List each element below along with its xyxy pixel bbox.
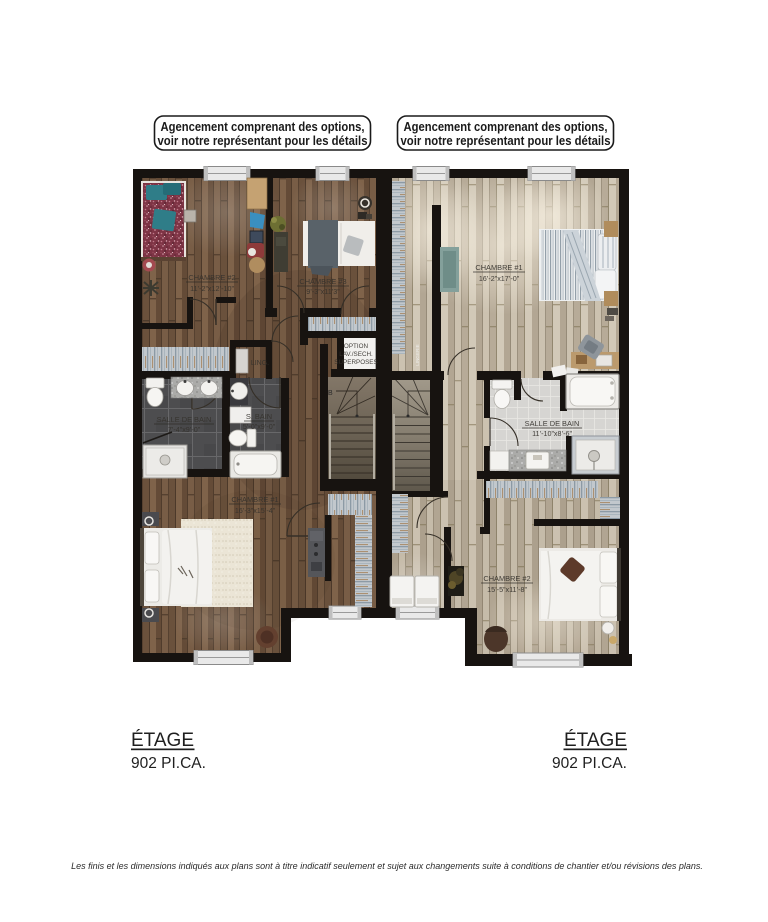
svg-text:OPTION: OPTION	[344, 343, 369, 350]
svg-text:ÉTAGE: ÉTAGE	[131, 730, 194, 751]
svg-text:16’-2”x17’-0”: 16’-2”x17’-0”	[479, 274, 520, 283]
svg-text:SALLE DE BAIN: SALLE DE BAIN	[157, 415, 212, 424]
svg-text:11’-10”x8’-6”: 11’-10”x8’-6”	[532, 429, 572, 438]
svg-text:ÉTAGE: ÉTAGE	[564, 730, 627, 751]
svg-text:902 PI.CA.: 902 PI.CA.	[131, 755, 206, 772]
svg-text:5’-0”x9’-0”: 5’-0”x9’-0”	[243, 422, 276, 431]
svg-text:9’-3”x11’3”: 9’-3”x11’3”	[306, 287, 340, 296]
svg-text:Agencement comprenant des opti: Agencement comprenant des options,	[161, 119, 365, 134]
svg-text:LAV./SECH.: LAV./SECH.	[339, 351, 373, 358]
svg-text:Agencement comprenant des opti: Agencement comprenant des options,	[404, 119, 608, 134]
svg-text:902 PI.CA.: 902 PI.CA.	[552, 755, 627, 772]
svg-text:CHAMBRE #1: CHAMBRE #1	[231, 495, 278, 504]
svg-text:LING.: LING.	[251, 360, 269, 367]
svg-text:CHAMBRE #2: CHAMBRE #2	[188, 273, 235, 282]
svg-text:LINGERIE: LINGERIE	[415, 344, 420, 365]
svg-text:voir notre représentant pour l: voir notre représentant pour les détails	[158, 133, 368, 148]
svg-text:CHAMBRE #2: CHAMBRE #2	[483, 574, 530, 583]
svg-text:15’-5”x11’-8”: 15’-5”x11’-8”	[487, 585, 527, 594]
svg-text:7’-4”x9’-0”: 7’-4”x9’-0”	[168, 425, 201, 434]
svg-text:voir notre représentant pour l: voir notre représentant pour les détails	[401, 133, 611, 148]
svg-text:Les finis et les dimensions in: Les finis et les dimensions indiqués aux…	[71, 861, 703, 871]
svg-text:SUPERPOSES: SUPERPOSES	[334, 359, 377, 366]
svg-text:11’-2”x12’-10”: 11’-2”x12’-10”	[190, 284, 234, 293]
svg-text:CHAMBRE #1: CHAMBRE #1	[475, 263, 522, 272]
svg-text:SALLE DE BAIN: SALLE DE BAIN	[525, 419, 580, 428]
svg-text:CHAMBRE #3: CHAMBRE #3	[299, 277, 346, 286]
svg-text:S. BAIN: S. BAIN	[246, 412, 272, 421]
svg-text:16’-3”x15’-4”: 16’-3”x15’-4”	[235, 506, 276, 515]
svg-text:B: B	[328, 390, 333, 397]
